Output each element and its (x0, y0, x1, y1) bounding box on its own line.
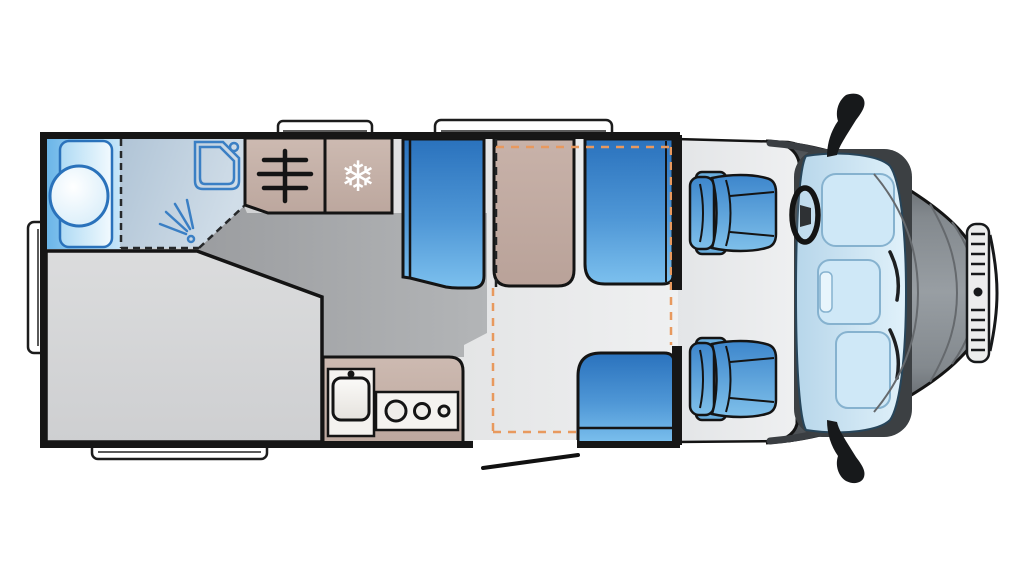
side-bench-seat (578, 353, 674, 444)
floorplan-canvas: ❄ (0, 0, 1024, 576)
entrance-door-swing-icon (483, 455, 578, 468)
motorhome-floorplan: ❄ (0, 0, 1024, 576)
bulkhead-wall (672, 135, 682, 290)
fridge-snowflake-icon: ❄ (340, 152, 375, 201)
entrance-door-opening (473, 440, 577, 450)
steering-wheel-hub (800, 205, 811, 227)
badge-icon (974, 288, 983, 297)
sink-icon (333, 378, 369, 420)
hob-burners-icon (439, 406, 449, 416)
bulkhead-wall (672, 346, 682, 445)
hob-burners-icon (415, 404, 430, 419)
dinette-bench-rear-facing (403, 139, 484, 288)
dashboard-reflection (836, 332, 890, 408)
dashboard-reflection (820, 272, 832, 312)
cab-passenger-seat (690, 172, 776, 254)
bathroom (46, 138, 245, 249)
wing-mirror-icon (827, 94, 865, 157)
washbasin-icon (50, 166, 108, 226)
cab (676, 94, 997, 483)
hob-burners-icon (386, 401, 406, 421)
cab-driver-seat (690, 338, 776, 420)
kitchen (323, 357, 463, 443)
dinette-bench-forward-facing (585, 139, 673, 284)
dinette-table (494, 139, 574, 286)
tap-icon (348, 371, 355, 378)
front-bumper-edge (990, 235, 997, 351)
